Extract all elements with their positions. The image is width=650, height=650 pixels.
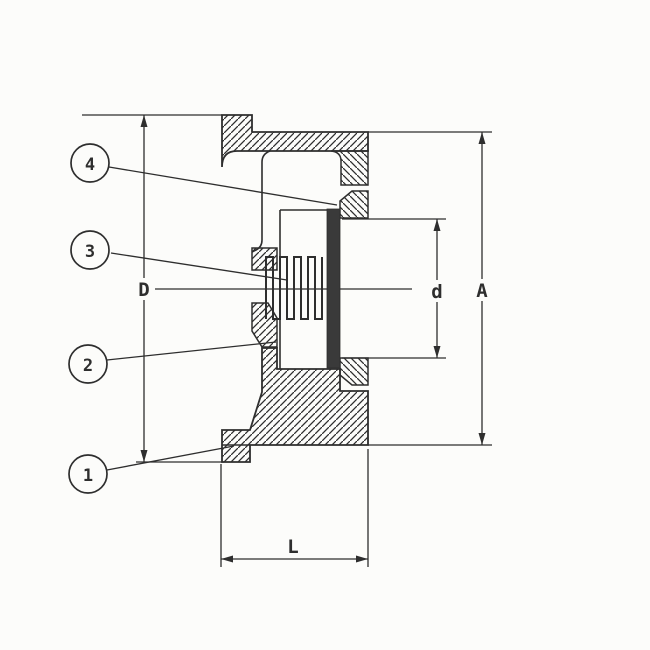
balloon-3: 3 (71, 231, 109, 269)
leader-line-1 (107, 446, 234, 470)
seat-wedge-lower (340, 358, 368, 385)
arrowhead-left-L (221, 556, 233, 563)
arrowhead-up-A (479, 132, 486, 144)
dimension-label-L: L (287, 536, 298, 558)
arrowhead-down-d (434, 346, 441, 358)
balloon-label-2: 2 (83, 356, 93, 376)
leader-line-2 (107, 342, 276, 360)
arrowhead-right-L (356, 556, 368, 563)
valve-internals (252, 151, 340, 369)
arrowhead-up-d (434, 219, 441, 231)
disc (327, 209, 340, 368)
dimension-L: L (221, 449, 368, 567)
balloon-label-1: 1 (83, 466, 93, 486)
arrowhead-down-A (479, 433, 486, 445)
balloon-4: 4 (71, 144, 109, 182)
arrowhead-up-D (141, 115, 148, 127)
dimension-label-d: d (431, 281, 442, 303)
dimension-label-D: D (138, 279, 149, 301)
balloon-label-3: 3 (85, 242, 95, 262)
balloon-1: 1 (69, 455, 107, 493)
drawing-sheet: D d A L 4 (0, 0, 650, 650)
seat-ring-upper (331, 151, 368, 185)
dimension-label-A: A (476, 280, 488, 302)
seat-wedge-upper (340, 191, 368, 218)
inlet-wall-edge (252, 151, 270, 252)
arrowhead-down-D (141, 450, 148, 462)
balloon-2: 2 (69, 345, 107, 383)
balloon-label-4: 4 (85, 155, 95, 175)
leader-line-4 (109, 167, 337, 205)
valve-section-drawing: D d A L 4 (0, 0, 650, 650)
